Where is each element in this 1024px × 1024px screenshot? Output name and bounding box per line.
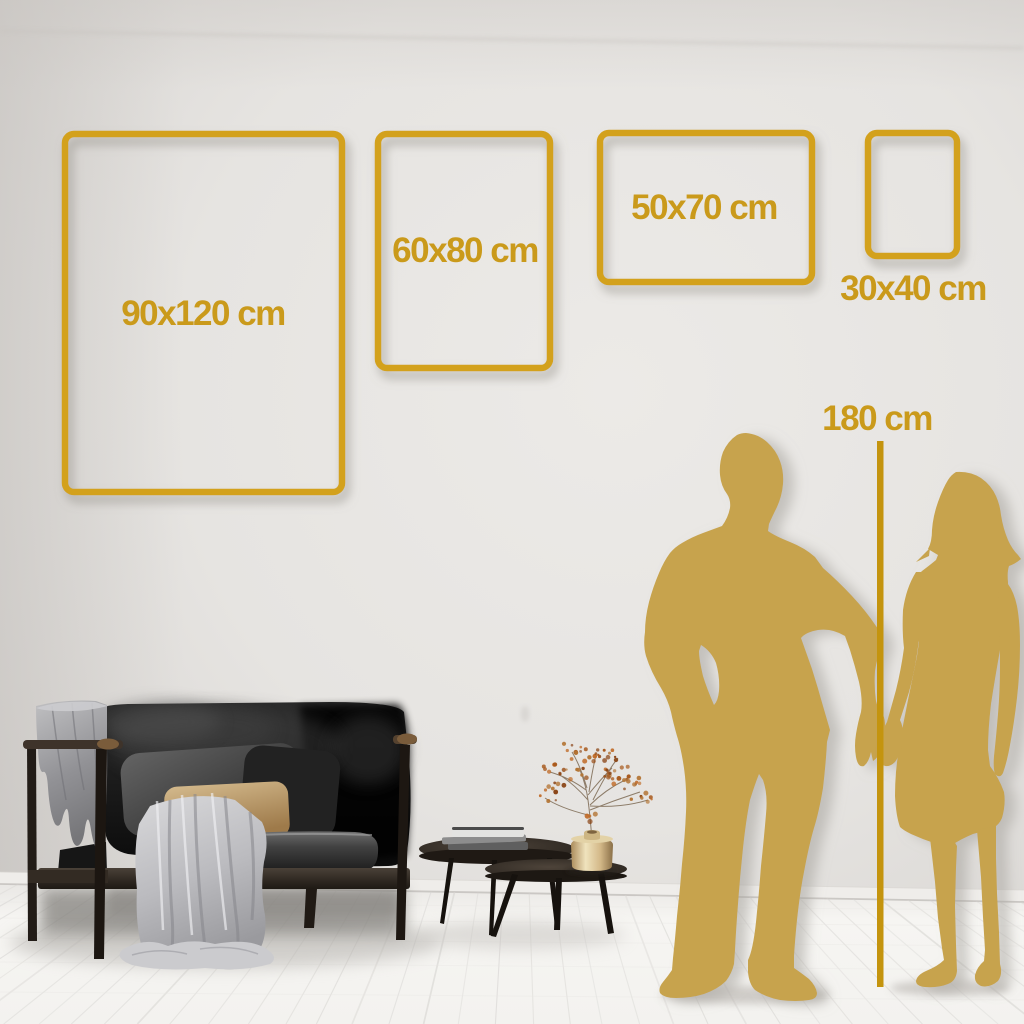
svg-text:50x70 cm: 50x70 cm xyxy=(631,188,777,227)
svg-text:30x40 cm: 30x40 cm xyxy=(840,269,986,308)
svg-text:60x80 cm: 60x80 cm xyxy=(392,231,538,270)
svg-text:180 cm: 180 cm xyxy=(822,399,932,438)
svg-text:90x120 cm: 90x120 cm xyxy=(121,294,285,333)
